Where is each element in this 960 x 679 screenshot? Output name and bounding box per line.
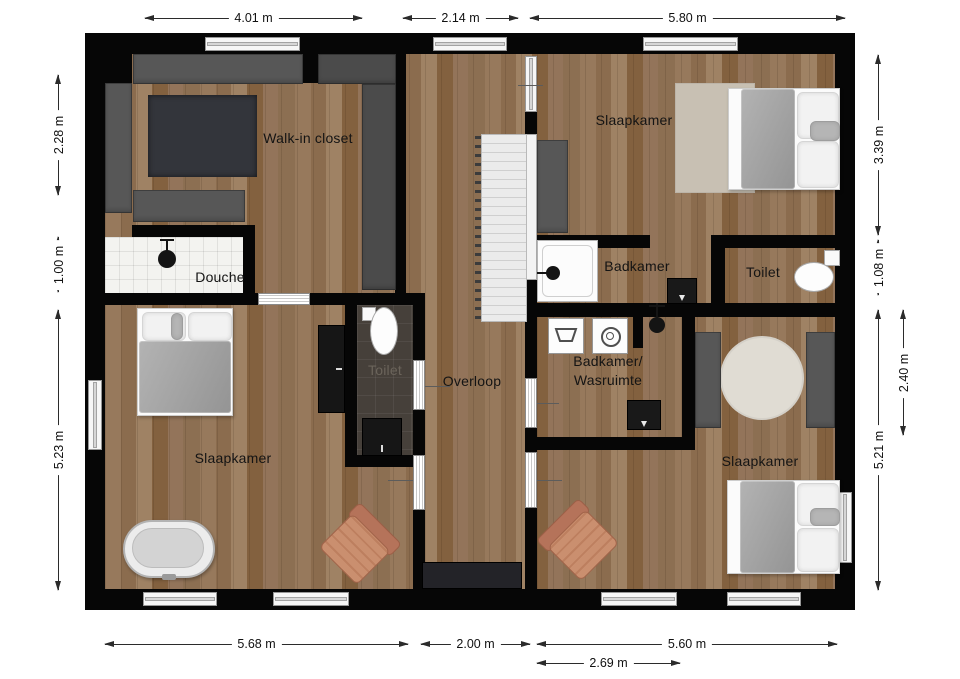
dimension-line: 2.28 m [58,75,59,195]
room-label-slaapkamer-bottom-right: Slaapkamer [722,453,799,469]
dimension-label: 5.80 m [662,11,712,25]
window [601,592,677,606]
door [413,360,425,410]
room-label-slaapkamer-bottom-left: Slaapkamer [195,450,272,466]
window [433,37,507,51]
dimension-label: 5.21 m [872,425,886,475]
door-swing [388,480,413,481]
arrow-down-icon [55,186,61,196]
dimension-label: 2.00 m [450,637,500,651]
stair-edge-ticks [475,136,481,320]
arrow-left-icon [104,641,114,647]
bathtub [123,520,215,578]
window [838,492,852,563]
room-label-walk-in-closet: Walk-in closet [263,130,352,146]
wall-segment [395,54,406,293]
toilet-tank-icon [824,250,840,266]
closet-cabinet [133,190,245,222]
wall-segment [682,317,695,450]
arrow-up-icon [875,54,881,64]
arrow-down-icon [55,581,61,591]
pillow [810,508,840,526]
dimension-label: 2.69 m [583,656,633,670]
dimension-line: 4.01 m [145,18,362,19]
window [643,37,738,51]
arrow-down-icon [875,226,881,236]
bathtub-faucet [162,574,176,580]
room-label-douche: Douche [195,269,244,285]
duvet [740,481,795,573]
window [143,592,217,606]
cabinet [318,325,345,413]
arrow-right-icon [828,641,838,647]
shower-arm-icon [649,305,665,307]
dimension-line: 2.69 m [537,663,680,664]
dark-rug [148,95,257,177]
wall-segment [413,410,425,455]
dimension-line: 2.00 m [421,644,530,645]
wall-segment [345,305,357,467]
dimension-line: 2.14 m [403,18,518,19]
wall-segment [725,235,835,248]
arrow-up-icon [900,309,906,319]
pillow [171,313,183,340]
duvet [139,341,231,413]
cabinet [362,418,402,456]
entrance-mat [627,400,661,430]
room-label-line1: Badkamer/ [573,352,643,371]
arrow-up-icon [55,74,61,84]
arrow-right-icon [509,15,519,21]
dimension-label: 2.40 m [897,347,911,397]
pillow [810,121,840,141]
hand-wash-glyph [549,319,583,353]
arrow-right-icon [836,15,846,21]
cabinet-handle [336,368,342,370]
stairs [481,134,527,322]
dimension-line: 1.00 m [58,237,59,292]
dimension-line: 5.23 m [58,310,59,590]
arrow-right-icon [399,641,409,647]
interior-window [525,56,537,112]
dimension-label: 1.00 m [52,239,66,289]
closet-cabinet [133,54,303,84]
pillow [188,312,232,341]
wall-segment [525,437,695,450]
wall-segment [525,508,537,590]
wardrobe [695,332,721,428]
arrow-down-icon [900,426,906,436]
door [413,455,425,510]
door [525,378,537,428]
dimension-line: 3.39 m [878,55,879,235]
dimension-label: 2.28 m [52,110,66,160]
wall-segment [85,33,105,610]
arrow-left-icon [529,15,539,21]
laundry-sink-icon [548,318,584,354]
dimension-line: 2.40 m [903,310,904,435]
door-swing [537,403,559,404]
arrow-left-icon [402,15,412,21]
floor-plan-canvas: Walk-in closet Douche Toilet Overloop Sl… [0,0,960,679]
window [727,592,801,606]
wall-segment [413,305,425,360]
wall-segment [132,225,245,237]
room-label-overloop: Overloop [443,373,501,389]
toilet-icon [370,307,398,355]
arrow-right-icon [521,641,531,647]
arrow-right-icon [671,660,681,666]
wardrobe [806,332,835,428]
dimension-label: 2.14 m [435,11,485,25]
toilet-icon [794,262,834,292]
arrow-up-icon [875,309,881,319]
window [273,592,349,606]
dimension-label: 5.23 m [52,425,66,475]
shower-head-icon [649,317,665,333]
shower-arm-icon [160,239,174,241]
room-label-toilet-right: Toilet [746,264,780,280]
cabinet-handle [381,445,383,452]
wall-segment [302,54,318,83]
room-label-slaapkamer-top-right: Slaapkamer [596,112,673,128]
washing-machine-icon [592,318,628,354]
shower-head-icon [546,266,560,280]
stair-railing [526,134,537,280]
shower-head-icon [158,250,176,268]
room-label-line2: Wasruimte [573,371,643,390]
wall-segment [105,293,258,305]
dimension-label: 3.39 m [872,120,886,170]
wall-segment [105,54,132,83]
wall-segment [525,112,537,134]
dimension-label: 1.08 m [872,242,886,292]
window [88,380,102,450]
dimension-line: 5.21 m [878,310,879,590]
dimension-line: 5.80 m [530,18,845,19]
dimension-label: 5.68 m [231,637,281,651]
dimension-line: 1.08 m [878,240,879,295]
door-swing [537,480,562,481]
wall-segment [525,303,855,317]
closet-cabinet [318,54,396,84]
wall-segment [633,303,643,348]
arrow-left-icon [420,641,430,647]
pillow [797,141,839,188]
room-label-badkamer-wasruimte: Badkamer/ Wasruimte [573,352,643,390]
door-swing [518,85,543,86]
arrow-down-icon [875,581,881,591]
wardrobe [537,140,568,233]
dimension-line: 5.68 m [105,644,408,645]
dimension-label: 5.60 m [662,637,712,651]
arrow-left-icon [536,660,546,666]
washer-drum-inner [606,332,614,340]
pillow [797,528,839,572]
arrow-right-icon [353,15,363,21]
arrow-left-icon [536,641,546,647]
arrow-left-icon [144,15,154,21]
wardrobe [362,84,396,290]
wall-segment [243,225,255,303]
room-label-toilet-middle: Toilet [368,362,402,378]
door [258,293,310,305]
arrow-up-icon [55,309,61,319]
bathtub-basin [132,528,204,568]
room-label-badkamer: Badkamer [604,258,669,274]
entrance-mat [667,278,697,304]
wall-segment [310,293,425,305]
round-rug [720,336,804,420]
door [525,452,537,508]
closet-cabinet [105,83,132,213]
dimension-line: 5.60 m [537,644,837,645]
sideboard [422,562,522,589]
duvet [741,89,795,189]
dimension-label: 4.01 m [228,11,278,25]
window [205,37,300,51]
